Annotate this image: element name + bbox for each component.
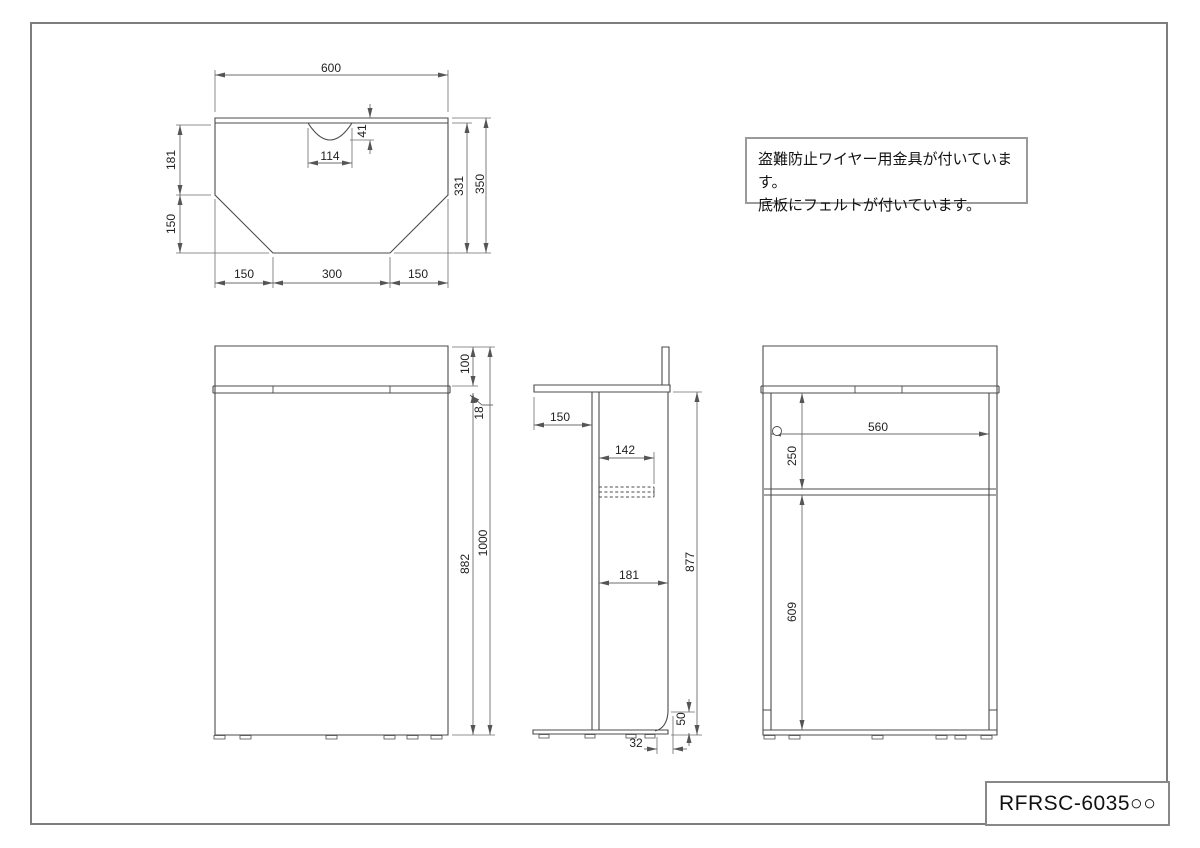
- title-block: RFRSC-6035○○: [985, 781, 1170, 826]
- dim-side-overhang: 150: [550, 411, 570, 423]
- dim-top-width: 600: [321, 62, 341, 74]
- drawing-canvas: [0, 0, 1200, 848]
- note-line-2: 底板にフェルトが付いています。: [758, 194, 1026, 217]
- top-view-dimensions: [176, 70, 491, 288]
- dim-side-cutout-depth: 32: [629, 737, 642, 749]
- dim-top-bottom-center: 300: [322, 268, 342, 280]
- note-line-1: 盗難防止ワイヤー用金具が付いています。: [758, 148, 1026, 194]
- dim-side-body-depth: 181: [619, 569, 639, 581]
- dim-top-bottom-left: 150: [234, 268, 254, 280]
- dim-front-top-thickness: 18: [473, 406, 485, 419]
- dim-top-notch-width: 114: [320, 150, 339, 162]
- dim-side-shelf-depth: 142: [615, 444, 635, 456]
- dim-back-shelf-top: 250: [786, 446, 798, 466]
- dim-top-notch-depth: 41: [356, 124, 368, 137]
- dim-front-body-height: 882: [459, 554, 471, 574]
- dim-top-right-inner: 331: [453, 176, 465, 196]
- bottom-radius-cutout: [655, 392, 668, 731]
- base-plate: [533, 730, 668, 734]
- dim-top-bottom-right: 150: [408, 268, 428, 280]
- dim-back-shelf-bottom: 609: [786, 602, 798, 622]
- shelf-front-edge: [764, 489, 996, 495]
- dim-front-panel-height: 100: [459, 354, 471, 374]
- dim-top-right-outer: 350: [474, 174, 486, 194]
- part-number: RFRSC-6035○○: [999, 792, 1156, 816]
- raised-front-panel: [662, 347, 669, 385]
- anti-theft-wire-bracket: [773, 427, 782, 436]
- feature-note-box: 盗難防止ワイヤー用金具が付いています。 底板にフェルトが付いています。: [745, 137, 1028, 204]
- top-board: [534, 385, 670, 392]
- back-view-geometry: [761, 346, 999, 739]
- top-view-geometry: [215, 118, 448, 253]
- back-view-dimensions: [771, 393, 989, 730]
- dim-top-left-lower: 150: [165, 214, 177, 234]
- dim-top-left-upper: 181: [165, 150, 177, 170]
- dim-side-cutout-height: 50: [675, 712, 687, 725]
- dim-side-height: 877: [684, 552, 696, 572]
- side-view-geometry: [533, 347, 670, 738]
- cable-notch-arc: [308, 123, 352, 140]
- front-view-geometry: [213, 346, 450, 739]
- hidden-shelf: [599, 487, 654, 497]
- dim-front-total-height: 1000: [477, 530, 489, 557]
- drawing-sheet: 600 41 114 181 150 331 350 150 300 150 1…: [0, 0, 1200, 848]
- dim-back-inner-width: 560: [868, 421, 888, 433]
